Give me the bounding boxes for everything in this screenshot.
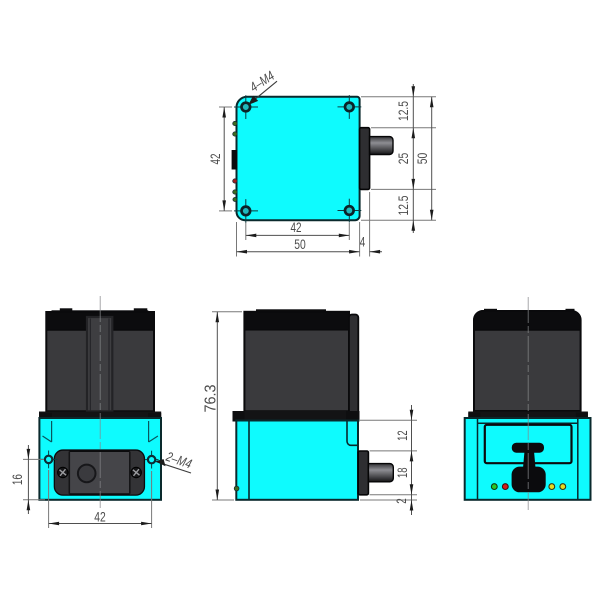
svg-text:42: 42 [207,153,223,164]
svg-text:12: 12 [394,430,410,441]
svg-text:76.3: 76.3 [203,385,220,413]
svg-text:42: 42 [291,219,302,235]
svg-text:12.5: 12.5 [395,101,411,121]
svg-text:50: 50 [414,153,430,165]
svg-text:12.5: 12.5 [395,195,411,215]
svg-text:2: 2 [393,498,409,504]
svg-text:42: 42 [94,509,106,525]
svg-text:18: 18 [394,467,410,478]
svg-text:25: 25 [395,153,411,165]
svg-text:50: 50 [294,236,306,252]
svg-text:16: 16 [9,474,25,485]
svg-text:4: 4 [360,234,366,250]
